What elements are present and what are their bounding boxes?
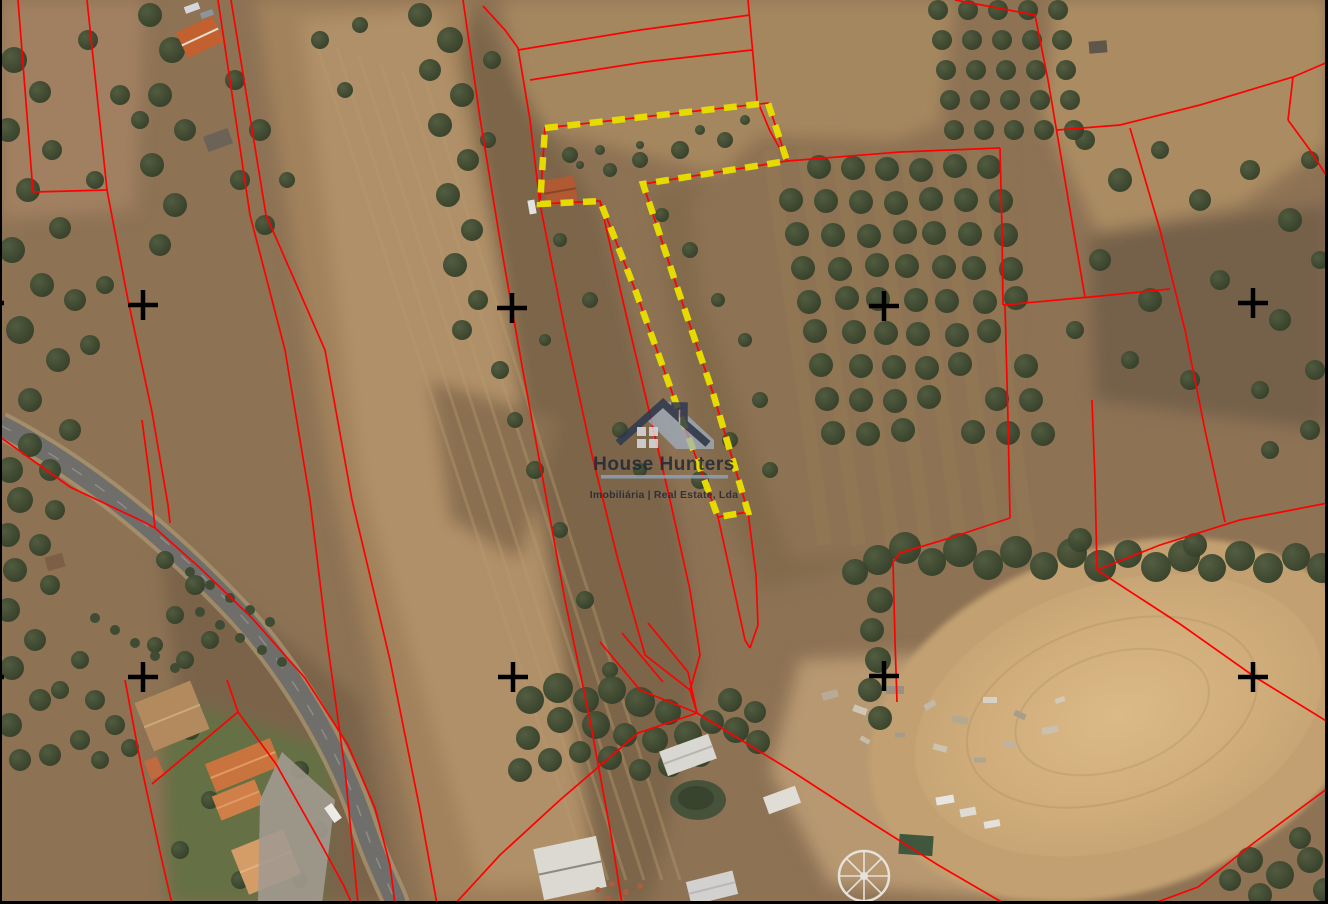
building [1089,40,1108,54]
building [898,834,933,856]
round-structure [839,851,889,901]
watermark-brand-text: House Hunters [593,454,735,475]
satellite-map[interactable]: House Hunters Imobiliária | Real Estate,… [0,0,1328,904]
watermark-tagline-text: Imobiliária | Real Estate, Lda [590,489,738,501]
watermark-divider [601,475,728,479]
listing-map-image: House Hunters Imobiliária | Real Estate,… [0,0,1328,904]
